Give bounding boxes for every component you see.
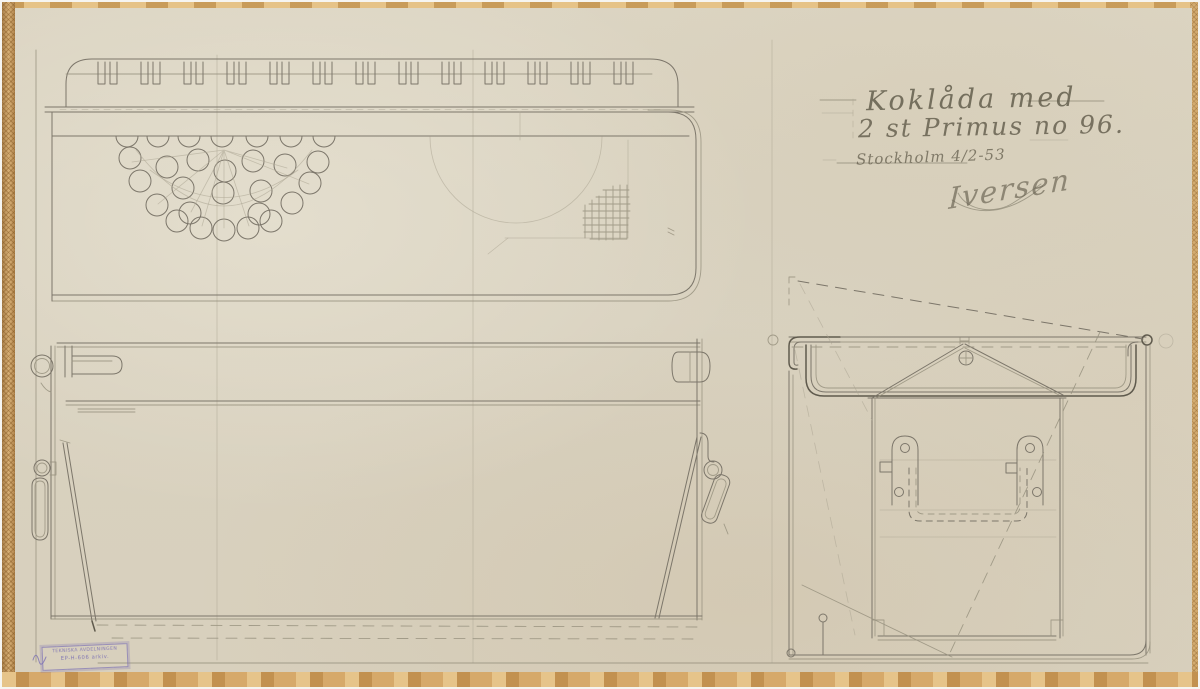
- toggle-latch: [700, 433, 732, 534]
- lid-knob-left: [65, 346, 122, 377]
- hatch-grid: [583, 185, 630, 240]
- struts: [60, 437, 701, 631]
- handle-brackets: [880, 436, 1043, 505]
- paper-creases: [36, 40, 772, 663]
- bail-handle-dashed: [909, 468, 1027, 521]
- end-panel: [872, 398, 1063, 640]
- end-view: [768, 277, 1173, 659]
- side-view: [31, 339, 732, 639]
- rail-notches: [98, 62, 633, 84]
- lid-knob-right: [672, 352, 710, 382]
- drawing-title-line2: 2 st Primus no 96.: [858, 110, 1125, 144]
- archive-stamp: TEKNISKA AVDELNINGEN EP-H-606 arkiv.: [42, 643, 129, 671]
- plan-view: [45, 59, 701, 301]
- open-lid-construction: [789, 277, 1143, 657]
- hinge-barrel: [31, 355, 53, 392]
- corner-pin: [819, 614, 833, 655]
- scanned-drawing: Koklåda med 2 st Primus no 96. Stockholm…: [0, 0, 1200, 689]
- stamp-line2: EP-H-606 arkiv.: [43, 653, 127, 663]
- vent-holes: [116, 125, 335, 241]
